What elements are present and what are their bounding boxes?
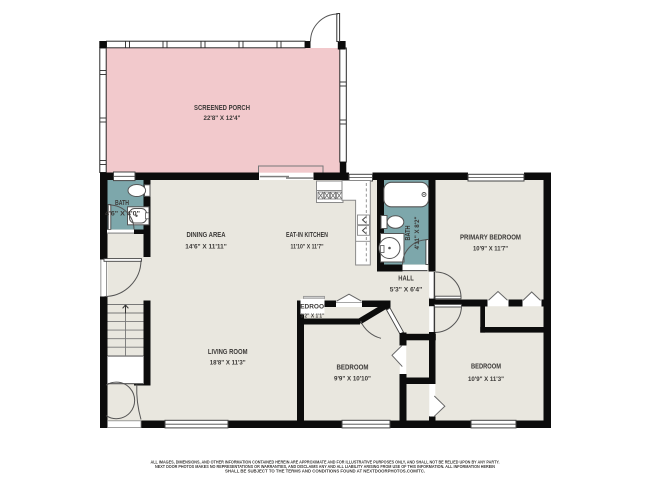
svg-text:BEDROOM: BEDROOM xyxy=(471,364,501,371)
svg-text:LIVING ROOM: LIVING ROOM xyxy=(208,349,248,356)
svg-text:11'10" X 11'7": 11'10" X 11'7" xyxy=(291,244,324,251)
svg-text:4'6" X 4'0": 4'6" X 4'0" xyxy=(105,211,140,218)
svg-text:BEDROOM: BEDROOM xyxy=(337,365,369,372)
svg-text:PRIMARY BEDROOM: PRIMARY BEDROOM xyxy=(460,235,521,242)
svg-text:BATH: BATH xyxy=(115,200,129,207)
svg-text:EAT-IN KITCHEN: EAT-IN KITCHEN xyxy=(286,232,328,239)
svg-text:BATH: BATH xyxy=(405,226,412,241)
svg-text:DINING AREA: DINING AREA xyxy=(187,232,226,239)
svg-text:HALL: HALL xyxy=(398,276,414,283)
svg-text:5'3" X 6'4": 5'3" X 6'4" xyxy=(390,286,423,293)
svg-text:4'11" X 8'2": 4'11" X 8'2" xyxy=(414,216,421,249)
svg-text:9'9" X 10'10": 9'9" X 10'10" xyxy=(334,376,371,383)
svg-text:BEDROOM: BEDROOM xyxy=(296,303,330,310)
svg-text:SHALL BE SUBJECT TO THE TERMS: SHALL BE SUBJECT TO THE TERMS AND CONDIT… xyxy=(225,469,425,474)
svg-text:14'6" X 11'11": 14'6" X 11'11" xyxy=(185,244,227,251)
svg-text:22'8" X 12'4": 22'8" X 12'4" xyxy=(204,115,241,122)
svg-text:10'9" X 11'3": 10'9" X 11'3" xyxy=(468,376,504,383)
svg-text:SCREENED PORCH: SCREENED PORCH xyxy=(194,105,250,112)
svg-text:3'2" X 1'1": 3'2" X 1'1" xyxy=(301,314,325,320)
svg-text:10'9" X 11'7": 10'9" X 11'7" xyxy=(473,246,508,253)
svg-text:18'8" X 11'3": 18'8" X 11'3" xyxy=(210,360,246,367)
